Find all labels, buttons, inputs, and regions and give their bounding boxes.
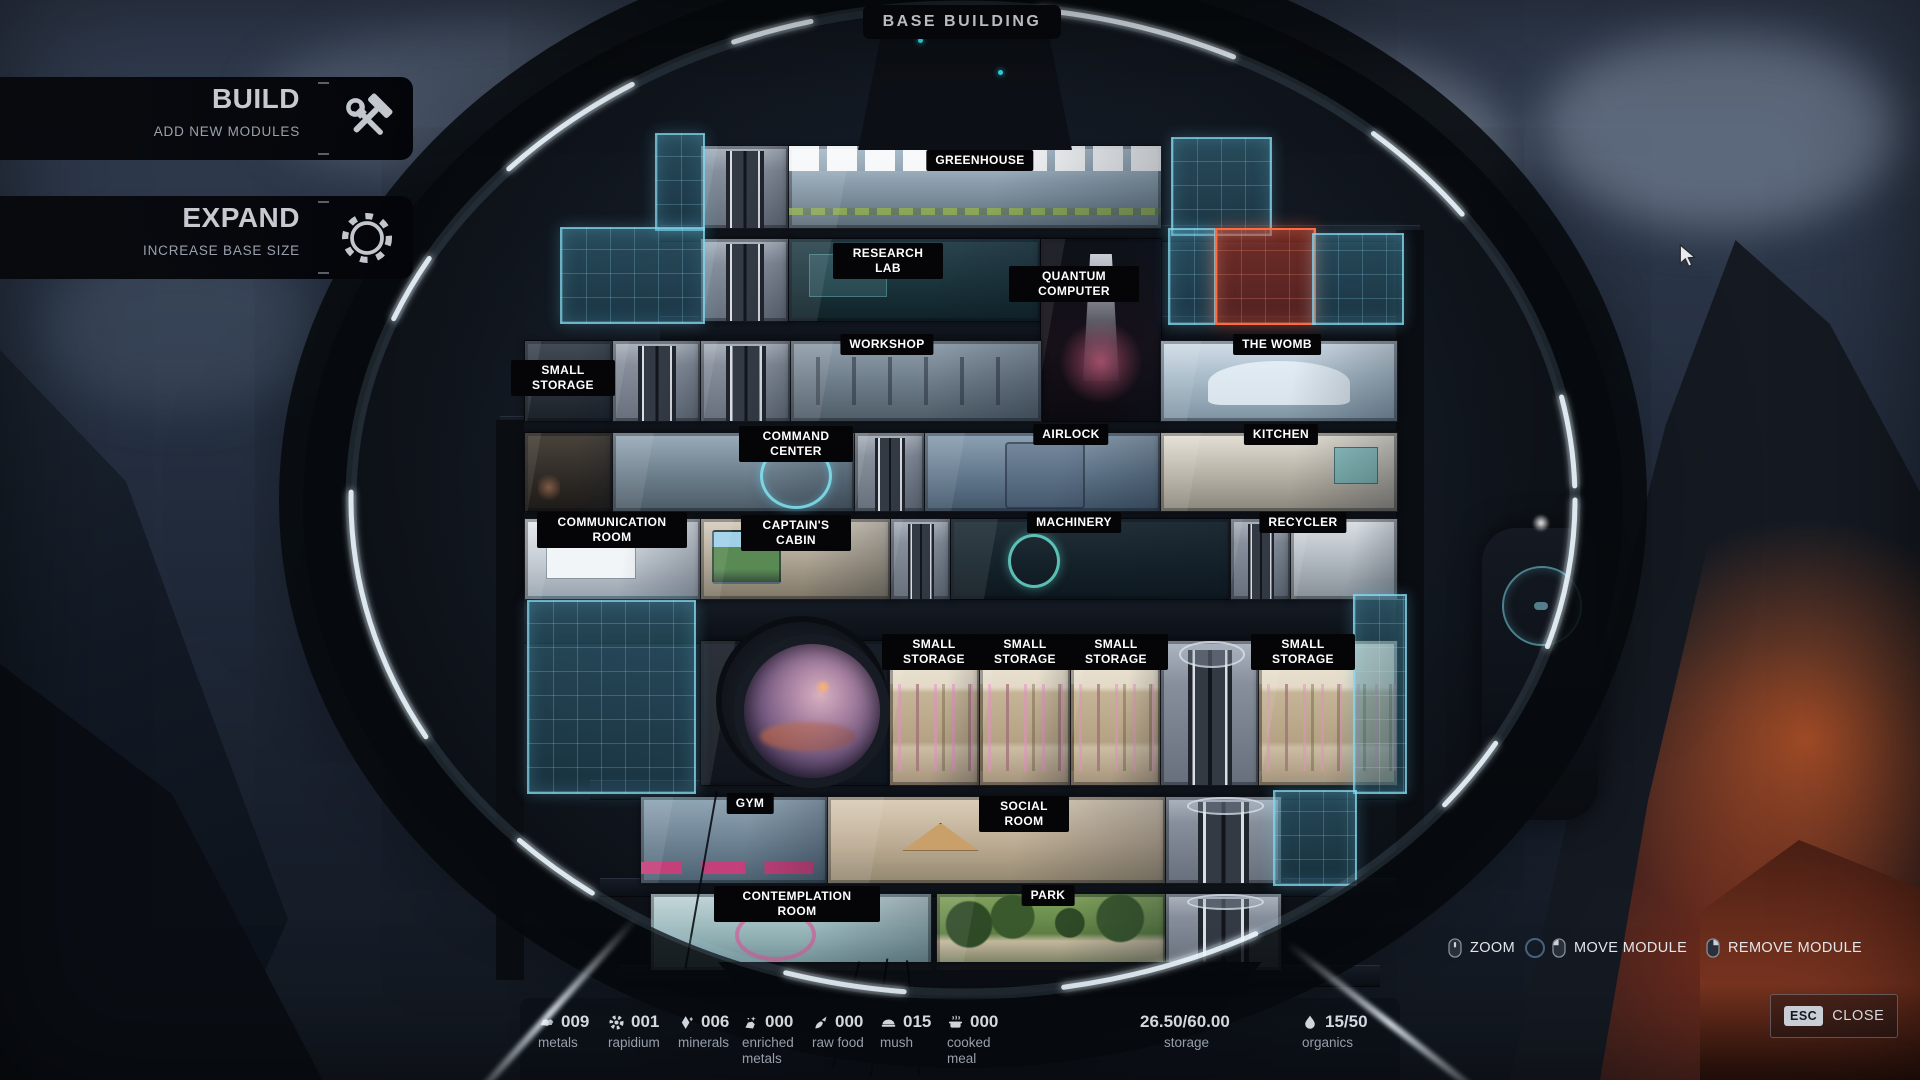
module-label: SMALL STORAGE (511, 360, 615, 396)
resource-label: mush (880, 1035, 950, 1051)
esc-key-badge: ESC (1784, 1006, 1823, 1026)
greenhouse-plants (789, 208, 1161, 215)
module-label: CAPTAIN'S CABIN (741, 515, 851, 551)
module-elevator[interactable] (890, 518, 952, 600)
zoom-dial-icon (1525, 938, 1545, 958)
resource-minerals: 006 minerals (678, 1012, 748, 1051)
resource-value: 009 (561, 1012, 589, 1032)
mouse-scroll-icon (1448, 938, 1462, 958)
storage-value: 26.50/60.00 (1140, 1012, 1230, 1032)
resource-label: enriched metals (742, 1035, 812, 1066)
side-strut (1396, 230, 1424, 910)
resource-mush: 015 mush (880, 1012, 950, 1051)
expand-button[interactable]: EXPAND INCREASE BASE SIZE (0, 196, 413, 279)
hammer-wrench-icon (337, 89, 397, 149)
porthole-housing (722, 622, 882, 780)
legend-remove-module: REMOVE MODULE (1706, 938, 1862, 958)
empty-build-slot[interactable] (1312, 233, 1404, 325)
organics-label: organics (1302, 1035, 1392, 1051)
resource-metals: 009 metals (538, 1012, 608, 1051)
module-elevator[interactable] (1165, 893, 1282, 971)
module-label: WORKSHOP (840, 334, 933, 355)
mouse-left-icon (1552, 938, 1566, 958)
mush-icon (880, 1014, 897, 1031)
resource-value: 000 (765, 1012, 793, 1032)
module-label: AIRLOCK (1033, 424, 1108, 445)
module-label: KITCHEN (1244, 424, 1318, 445)
module-label: SMALL STORAGE (1251, 634, 1355, 670)
module-label: RECYCLER (1259, 512, 1346, 533)
legend-zoom-label: ZOOM (1470, 940, 1515, 956)
module-elevator[interactable] (700, 340, 792, 422)
resource-label: rapidium (608, 1035, 678, 1051)
module-label: SOCIAL ROOM (979, 796, 1069, 832)
module-label: GYM (727, 793, 774, 814)
resource-value: 006 (701, 1012, 729, 1032)
resource-label: cooked meal (947, 1035, 1017, 1066)
build-button[interactable]: BUILD ADD NEW MODULES (0, 77, 413, 160)
build-sublabel: ADD NEW MODULES (154, 124, 300, 139)
resource-label: minerals (678, 1035, 748, 1051)
empty-build-slot[interactable] (1353, 594, 1407, 794)
empty-build-slot[interactable] (1273, 790, 1357, 886)
resource-value: 000 (970, 1012, 998, 1032)
cyan-light (998, 70, 1003, 75)
planet-porthole (734, 634, 890, 788)
page-title: BASE BUILDING (863, 5, 1061, 39)
minerals-icon (678, 1014, 695, 1031)
resource-label: raw food (812, 1035, 882, 1051)
module-label: THE WOMB (1233, 334, 1321, 355)
module-label: RESEARCH LAB (833, 243, 943, 279)
legend-zoom: ZOOM (1448, 938, 1545, 958)
build-label: BUILD (212, 83, 300, 115)
module-elevator[interactable] (700, 145, 790, 229)
droplet-icon (1302, 1014, 1319, 1031)
empty-build-slot[interactable] (527, 600, 696, 794)
resource-cooked-meal: 000 cooked meal (947, 1012, 1017, 1066)
organics-value: 15/50 (1325, 1012, 1368, 1032)
storage-label: storage (1164, 1035, 1270, 1051)
quantum-glow (1053, 312, 1149, 403)
resource-raw-food: 000 raw food (812, 1012, 882, 1051)
module-label: QUANTUM COMPUTER (1009, 266, 1139, 302)
module-elevator[interactable] (854, 432, 926, 512)
resource-organics: 15/50 organics (1302, 1012, 1392, 1051)
resource-value: 000 (835, 1012, 863, 1032)
expand-sublabel: INCREASE BASE SIZE (143, 243, 300, 258)
legend-remove-label: REMOVE MODULE (1728, 940, 1862, 956)
close-button[interactable]: ESC CLOSE (1770, 994, 1898, 1038)
empty-build-slot[interactable] (1168, 228, 1216, 325)
legend-move-label: MOVE MODULE (1574, 940, 1687, 956)
legend-move-module: MOVE MODULE (1552, 938, 1687, 958)
cooked-meal-icon (947, 1014, 964, 1031)
module-label: CONTEMPLATION ROOM (714, 886, 880, 922)
module-label: SMALL STORAGE (973, 634, 1077, 670)
empty-build-slot[interactable] (1171, 137, 1272, 236)
module-label: GREENHOUSE (926, 150, 1033, 171)
resource-label: metals (538, 1035, 608, 1051)
empty-build-slot[interactable] (560, 227, 705, 324)
module-label: MACHINERY (1027, 512, 1121, 533)
close-label: CLOSE (1832, 1008, 1884, 1024)
module-elevator[interactable] (1160, 640, 1260, 786)
expand-label: EXPAND (182, 202, 300, 234)
weld-spark (1532, 514, 1550, 532)
module-label: COMMUNICATION ROOM (537, 512, 687, 548)
module-label: SMALL STORAGE (1064, 634, 1168, 670)
module-elevator[interactable] (1165, 796, 1282, 884)
resource-value: 015 (903, 1012, 931, 1032)
module-label: SMALL STORAGE (882, 634, 986, 670)
module-label: COMMAND CENTER (739, 426, 853, 462)
side-strut (496, 420, 524, 980)
resource-storage: 26.50/60.00 storage (1140, 1012, 1270, 1051)
module-elevator[interactable] (700, 238, 790, 322)
metals-icon (538, 1014, 555, 1031)
resource-value: 001 (631, 1012, 659, 1032)
raw-food-icon (812, 1014, 829, 1031)
machinery-ring (1008, 534, 1060, 588)
rapidium-icon (608, 1014, 625, 1031)
empty-build-slot[interactable] (655, 133, 705, 231)
resource-enriched-metals: 000 enriched metals (742, 1012, 812, 1066)
module-elevator[interactable] (612, 340, 702, 422)
highlighted-remove-slot[interactable] (1215, 228, 1316, 325)
module-label: PARK (1022, 885, 1075, 906)
exterior-arm (1482, 528, 1598, 820)
mouse-right-icon (1706, 938, 1720, 958)
gear-ring-icon (337, 208, 397, 268)
arm-dial (1502, 566, 1582, 646)
resource-rapidium: 001 rapidium (608, 1012, 678, 1051)
enriched-metals-icon (742, 1014, 759, 1031)
module-storage-dim[interactable] (524, 432, 614, 512)
base-building-screen: GREENHOUSE RESEARCH LAB QUANTUM COMPUTER… (0, 0, 1920, 1080)
